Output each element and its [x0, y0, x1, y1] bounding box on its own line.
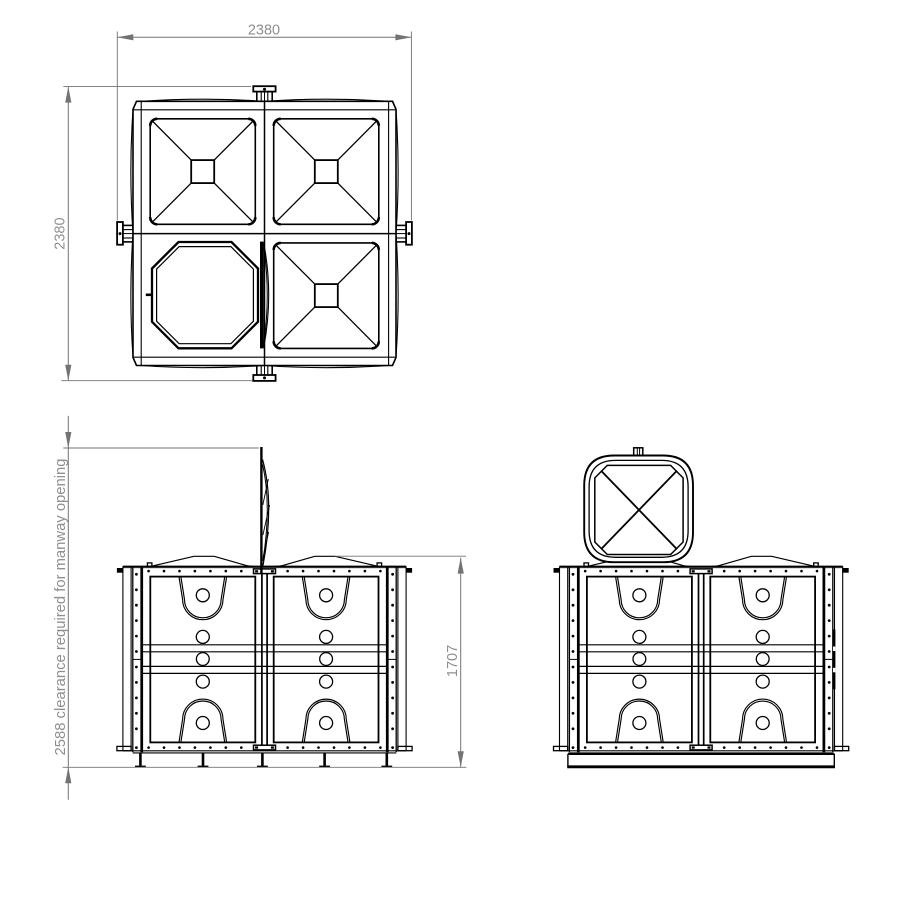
svg-text:2380: 2380: [53, 217, 69, 249]
svg-text:2588 clearance required for ma: 2588 clearance required for manway openi…: [53, 459, 69, 756]
svg-text:2380: 2380: [248, 23, 280, 39]
svg-text:1707: 1707: [445, 645, 461, 677]
